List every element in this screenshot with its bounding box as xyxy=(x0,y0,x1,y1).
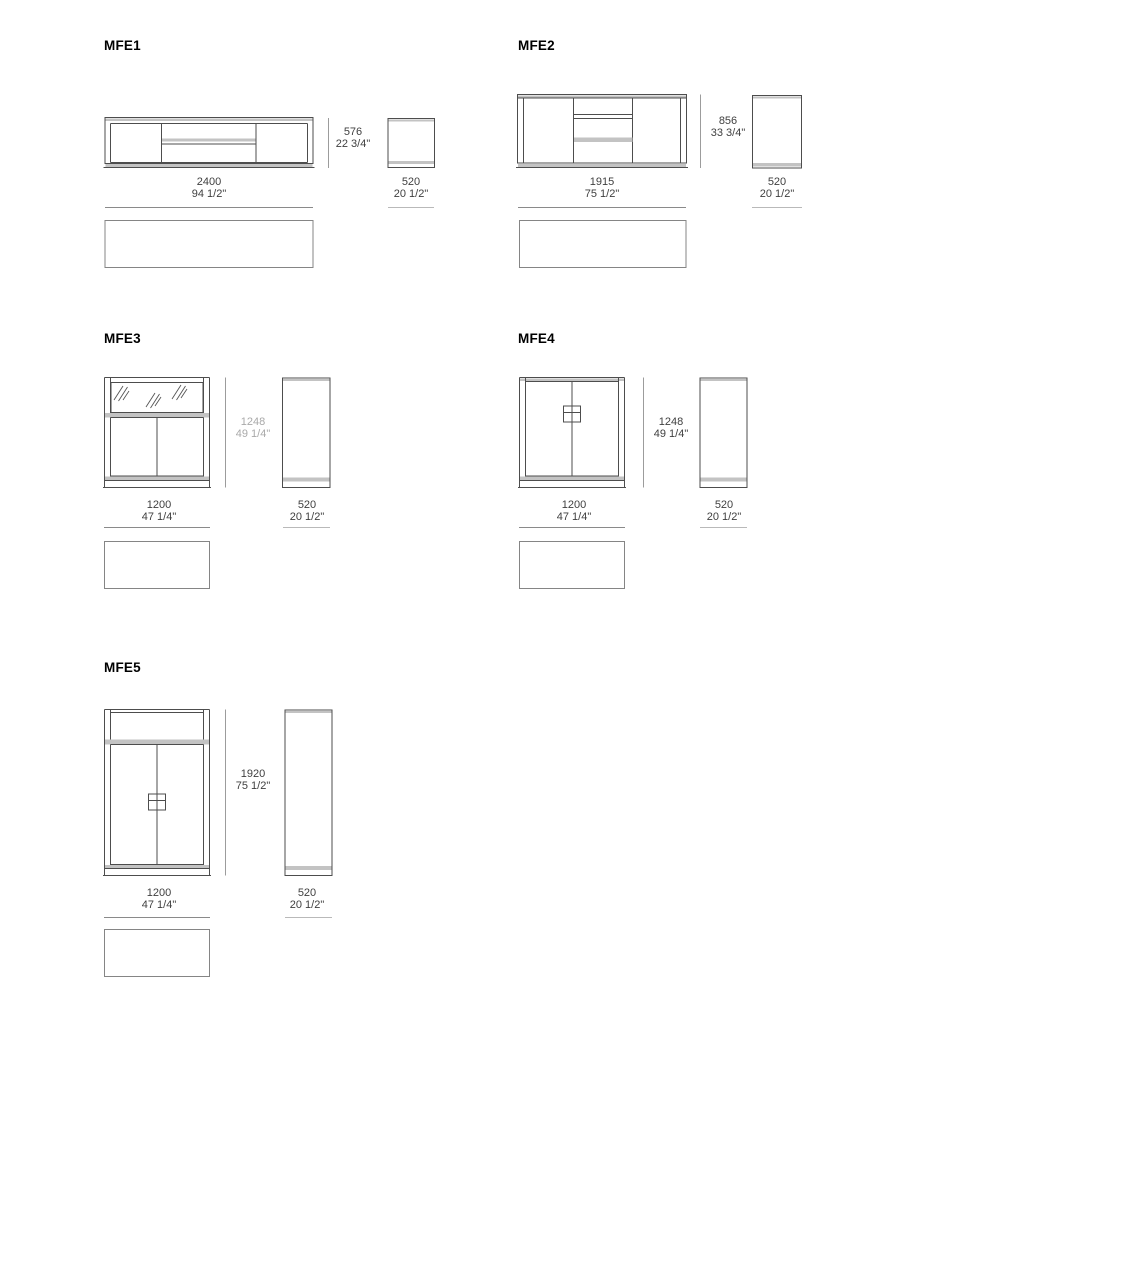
mfe2-depth-dimension: 520 20 1/2" xyxy=(749,176,805,200)
mfe1-front-view xyxy=(104,118,315,168)
mfe3-front-view xyxy=(103,378,211,488)
mfe4-top-view xyxy=(520,542,625,589)
mfe4-side-view xyxy=(700,378,747,488)
mfe2-width-dimension: 1915 75 1/2" xyxy=(518,176,686,200)
mfe4-depth-dimension: 520 20 1/2" xyxy=(696,499,752,523)
mfe1-depth-dimension: 520 20 1/2" xyxy=(383,176,439,200)
mfe1-top-view xyxy=(105,221,313,268)
mfe3-depth-dimension: 520 20 1/2" xyxy=(279,499,335,523)
mfe2-side-view xyxy=(753,96,802,169)
mfe4-title: MFE4 xyxy=(518,332,555,346)
mfe2-title: MFE2 xyxy=(518,39,555,53)
mfe5-side-view xyxy=(285,710,332,876)
mfe1-width-dimension: 2400 94 1/2" xyxy=(105,176,313,200)
mfe5-top-view xyxy=(105,930,210,977)
mfe4-height-dimension: 1248 49 1/4" xyxy=(643,416,699,440)
mfe3-top-view xyxy=(105,542,210,589)
mfe1-title: MFE1 xyxy=(104,39,141,53)
mfe5-width-dimension: 1200 47 1/4" xyxy=(106,887,212,911)
mfe2-front-view xyxy=(516,95,688,168)
mfe2-top-view xyxy=(520,221,687,268)
mfe3-title: MFE3 xyxy=(104,332,141,346)
mfe1-height-dimension: 576 22 3/4" xyxy=(329,126,377,150)
mfe3-height-dimension: 1248 49 1/4" xyxy=(225,416,281,440)
mfe3-side-view xyxy=(283,378,331,488)
mfe5-depth-dimension: 520 20 1/2" xyxy=(279,887,335,911)
mfe4-front-view xyxy=(518,378,626,488)
glass-hatch-marks xyxy=(114,385,187,408)
mfe2-height-dimension: 856 33 3/4" xyxy=(701,115,755,139)
mfe4-width-dimension: 1200 47 1/4" xyxy=(521,499,627,523)
mfe5-title: MFE5 xyxy=(104,661,141,675)
mfe1-side-view xyxy=(388,119,435,168)
mfe5-front-view xyxy=(103,710,211,876)
mfe5-height-dimension: 1920 75 1/2" xyxy=(225,768,281,792)
mfe3-width-dimension: 1200 47 1/4" xyxy=(106,499,212,523)
spec-sheet-page: MFE1 576 22 3/4" 2400 94 1/2" 520 20 1/2… xyxy=(0,0,1148,1286)
